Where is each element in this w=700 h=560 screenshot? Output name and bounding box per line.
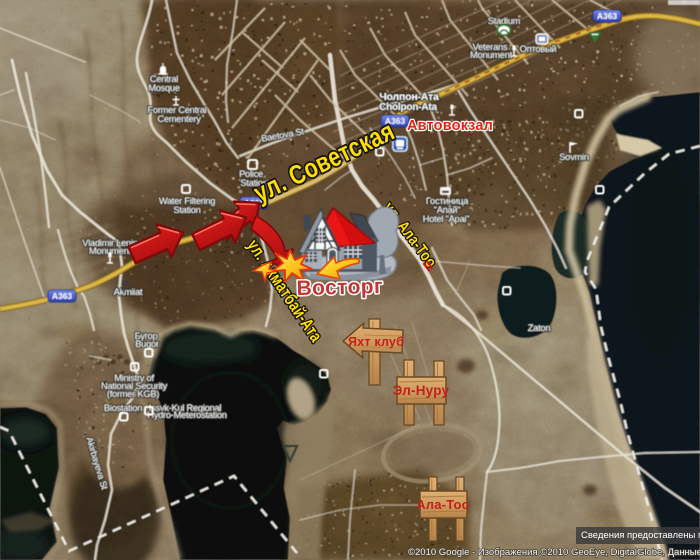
svg-text:Эл-Нуру: Эл-Нуру bbox=[393, 383, 450, 398]
svg-text:Biostation: Biostation bbox=[104, 403, 142, 413]
svg-text:Сведения предоставлены п: Сведения предоставлены п bbox=[581, 530, 700, 541]
svg-text:Оптовый: Оптовый bbox=[520, 44, 557, 54]
svg-text:Sovmin: Sovmin bbox=[559, 152, 589, 162]
svg-text:Ала-Тоо: Ала-Тоо bbox=[416, 497, 470, 512]
svg-text:Akmiiat: Akmiiat bbox=[114, 287, 143, 297]
svg-text:Автовокзал: Автовокзал bbox=[407, 118, 493, 134]
svg-text:A363: A363 bbox=[52, 291, 73, 301]
svg-text:Hydro-Meterostation: Hydro-Meterostation bbox=[147, 410, 227, 420]
svg-text:Hotel "Apai": Hotel "Apai" bbox=[423, 214, 470, 224]
svg-text:Cholpon-Ata: Cholpon-Ata bbox=[379, 102, 437, 113]
svg-text:Station: Station bbox=[173, 205, 200, 215]
svg-text:A363: A363 bbox=[597, 11, 618, 21]
svg-text:Яхт клуб: Яхт клуб bbox=[348, 335, 404, 349]
svg-text:(former KGB): (former KGB) bbox=[107, 389, 159, 399]
svg-text:Zaton: Zaton bbox=[528, 323, 551, 333]
svg-text:Bugor: Bugor bbox=[135, 339, 159, 349]
svg-text:Monument: Monument bbox=[470, 50, 513, 60]
svg-text:Cementery: Cementery bbox=[157, 114, 201, 124]
svg-text:©2010 Google - Изображения ©20: ©2010 Google - Изображения ©2010 GeoEye,… bbox=[408, 547, 700, 558]
svg-text:Восторг: Восторг bbox=[296, 275, 383, 300]
svg-text:Mosque: Mosque bbox=[148, 83, 180, 93]
